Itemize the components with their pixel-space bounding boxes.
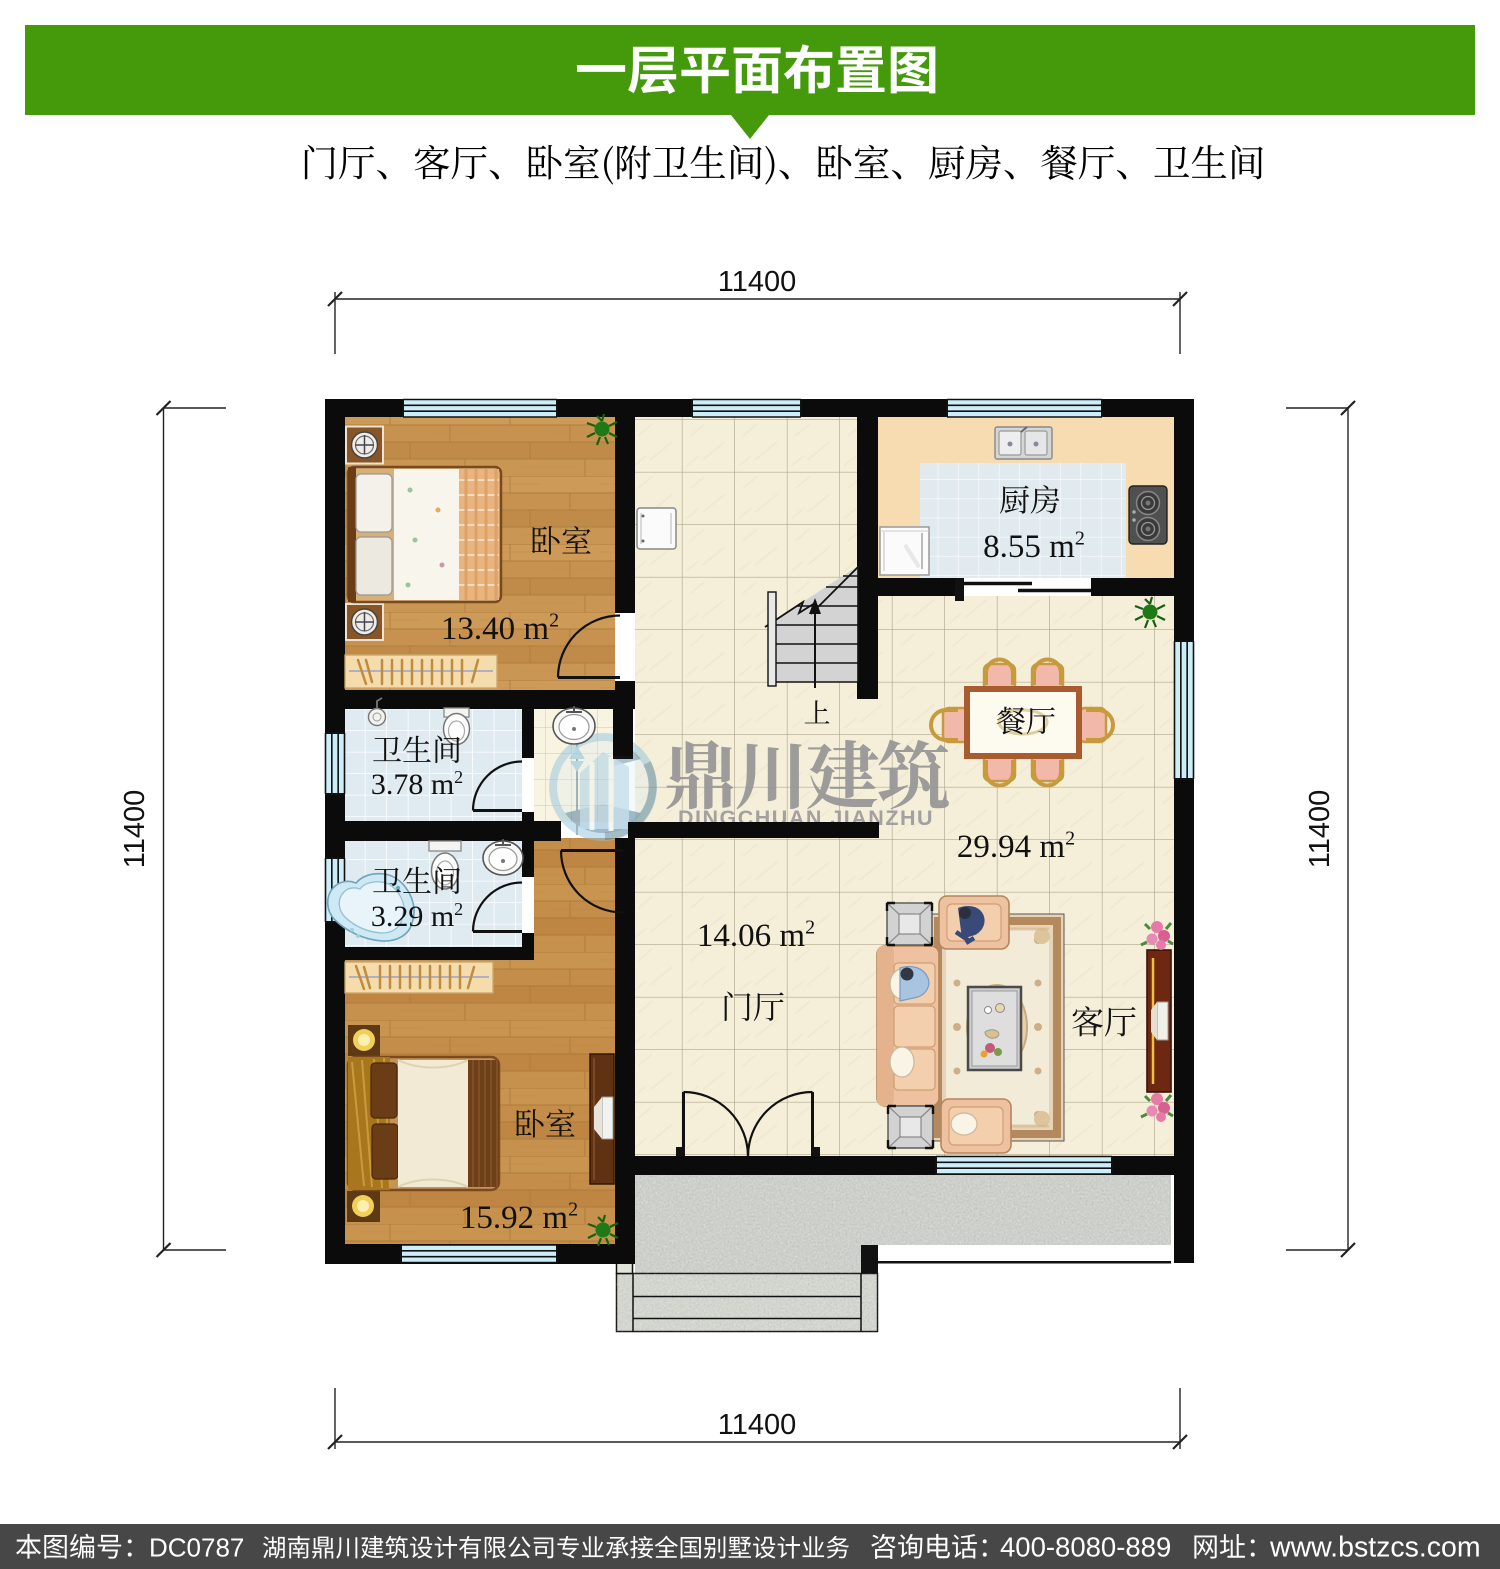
- svg-text:3.78 m2: 3.78 m2: [371, 767, 463, 801]
- svg-text:13.40 m2: 13.40 m2: [441, 610, 559, 648]
- svg-text:11400: 11400: [718, 266, 797, 298]
- svg-text:DC0787: DC0787: [149, 1533, 244, 1563]
- svg-text:29.94 m2: 29.94 m2: [957, 828, 1075, 866]
- svg-text:15.92 m2: 15.92 m2: [460, 1199, 578, 1237]
- svg-text:11400: 11400: [718, 1409, 797, 1441]
- svg-text:www.bstzcs.com: www.bstzcs.com: [1269, 1532, 1481, 1564]
- svg-text:11400: 11400: [119, 790, 151, 869]
- svg-text:400-8080-889: 400-8080-889: [1000, 1532, 1171, 1563]
- svg-text:8.55 m2: 8.55 m2: [983, 528, 1085, 566]
- svg-text:14.06 m2: 14.06 m2: [697, 917, 815, 955]
- svg-text:11400: 11400: [1304, 790, 1336, 869]
- svg-text:3.29 m2: 3.29 m2: [371, 899, 463, 933]
